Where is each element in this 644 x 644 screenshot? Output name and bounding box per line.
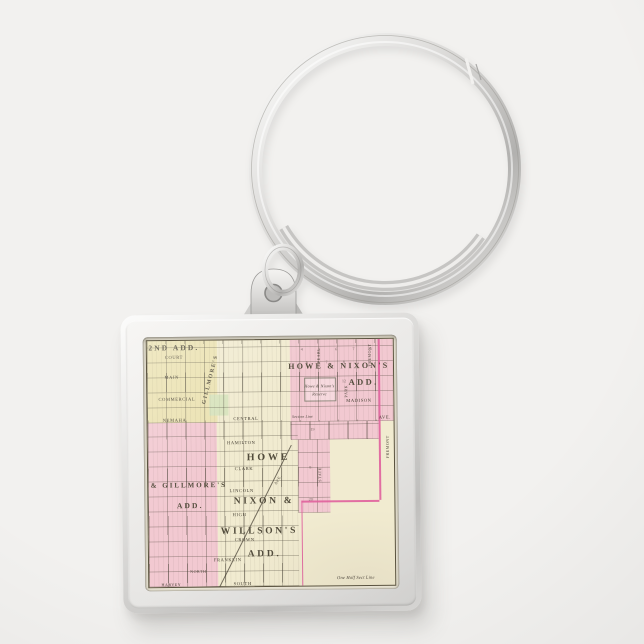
map-label: 12: [342, 379, 346, 383]
map-label: Howe & Nixon's: [304, 384, 334, 389]
map-label: CLARK: [235, 467, 253, 472]
map-label: SOUTH: [234, 581, 252, 586]
map-label: Reserve: [312, 393, 326, 397]
map-label: ED & GILLMORE'S: [146, 482, 227, 490]
map-label: ADD.: [248, 550, 282, 560]
split-ring: [256, 40, 515, 299]
keychain-scene: 2ND ADD.HOWE & NIXON'SADD.ED & GILLMORE'…: [0, 0, 644, 644]
plat-map: 2ND ADD.HOWE & NIXON'SADD.ED & GILLMORE'…: [146, 338, 397, 589]
map-label: 6: [335, 347, 337, 351]
map-label: MAIN: [164, 376, 179, 381]
map-label: AVE.: [274, 474, 283, 485]
map-label: HAMILTON: [227, 441, 256, 446]
map-label: HOWE & NIXON'S: [288, 362, 389, 371]
pendant-frame: 2ND ADD.HOWE & NIXON'SADD.ED & GILLMORE'…: [120, 312, 421, 613]
map-label: ADD.: [349, 378, 379, 387]
map-label: FREMONT: [386, 435, 390, 458]
map-label: 2ND ADD.: [148, 344, 199, 352]
map-label: COURT: [165, 356, 183, 361]
map-label: CENTRAL: [233, 417, 258, 422]
map-label: 4: [301, 347, 303, 351]
map-label: STATE: [318, 468, 322, 483]
map-label: 6: [306, 361, 308, 365]
map-label: 7: [326, 361, 328, 365]
map-label: HIGH: [233, 513, 247, 518]
map-label: One Half Sect Line: [337, 575, 375, 580]
map-label: 8: [309, 465, 311, 469]
map-label: 8: [343, 361, 345, 365]
map-label: MADISON: [346, 398, 371, 403]
product-photo: { "colors": { "background": "#f2f1ef", "…: [0, 0, 644, 644]
map-label: 8: [370, 347, 372, 351]
map-label: 19: [310, 427, 314, 431]
map-label: CROWN: [235, 538, 255, 543]
map-label: GILLMORE'S: [202, 355, 220, 406]
map-label: 7: [352, 347, 354, 351]
map-label: HOWE: [247, 453, 291, 463]
map-label: NIXON &: [234, 497, 295, 507]
map-label: 5: [318, 347, 320, 351]
map-label: NEMAHA: [163, 419, 187, 424]
map-label: FRANKLIN: [214, 558, 242, 563]
map-label: 20: [309, 497, 313, 501]
map-label: ADD.: [177, 502, 204, 510]
map-label: COMMERCIAL: [158, 398, 195, 403]
map-labels: 2ND ADD.HOWE & NIXON'SADD.ED & GILLMORE'…: [147, 339, 396, 588]
map-label: LINCOLN: [230, 489, 254, 494]
map-label: AVE.: [379, 416, 391, 421]
map-label: HARVEY: [162, 582, 182, 586]
map-label: Section Line: [292, 416, 313, 420]
map-label: NORTH: [190, 570, 206, 574]
pendant-face: 2ND ADD.HOWE & NIXON'SADD.ED & GILLMORE'…: [125, 317, 416, 608]
map-label: WILLSON'S: [221, 527, 298, 537]
map-label: PARK: [344, 385, 348, 398]
map-well: 2ND ADD.HOWE & NIXON'SADD.ED & GILLMORE'…: [143, 335, 400, 592]
